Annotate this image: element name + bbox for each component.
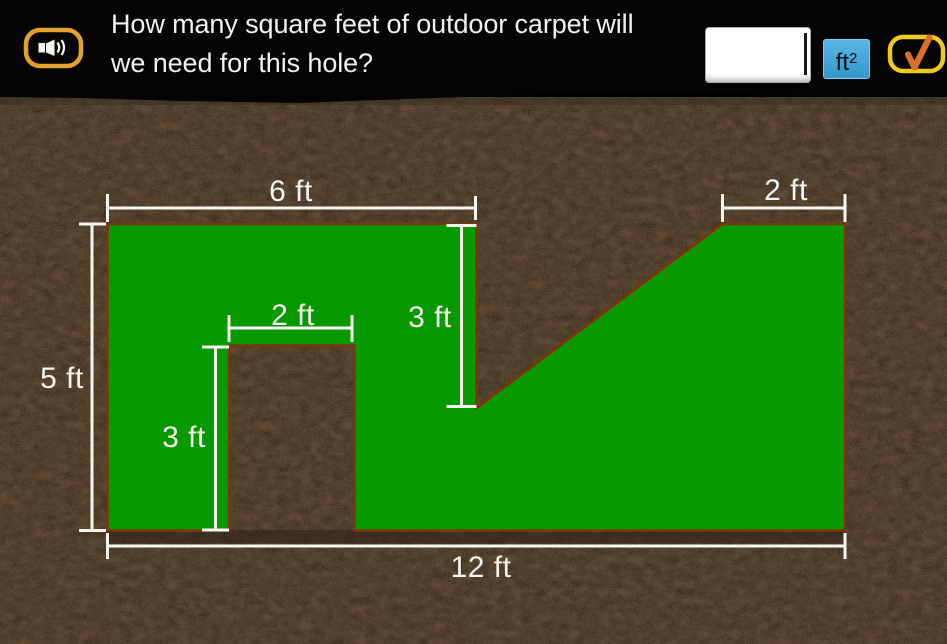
svg-text:2 ft: 2 ft	[271, 299, 315, 332]
svg-text:6 ft: 6 ft	[269, 175, 313, 208]
svg-text:12 ft: 12 ft	[451, 551, 512, 584]
svg-text:2 ft: 2 ft	[764, 174, 808, 207]
svg-text:5 ft: 5 ft	[40, 362, 84, 395]
svg-text:3 ft: 3 ft	[162, 421, 206, 454]
svg-text:3 ft: 3 ft	[408, 301, 452, 334]
